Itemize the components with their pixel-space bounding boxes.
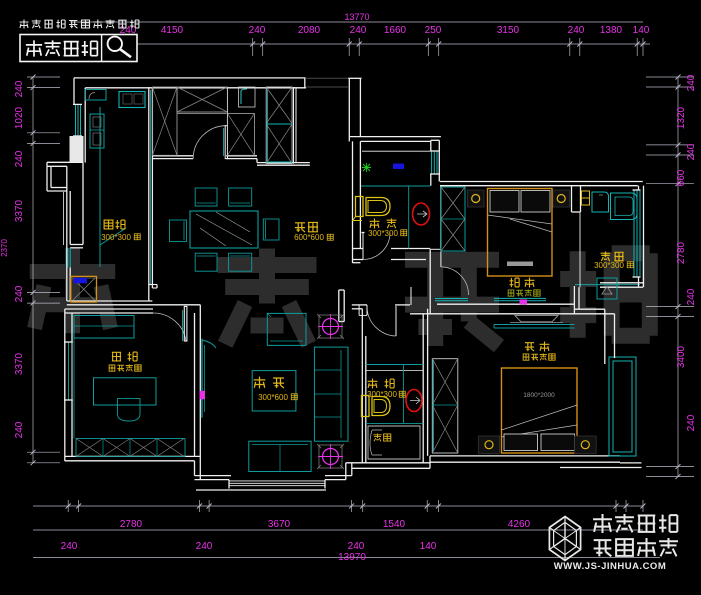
svg-text:660: 660 bbox=[676, 169, 687, 186]
svg-text:140: 140 bbox=[420, 541, 437, 552]
svg-text:240: 240 bbox=[350, 25, 367, 36]
svg-text:2370: 2370 bbox=[0, 239, 9, 257]
svg-text:3370: 3370 bbox=[14, 352, 25, 375]
svg-text:240: 240 bbox=[14, 285, 25, 302]
svg-text:1540: 1540 bbox=[383, 519, 406, 530]
svg-text:300*300: 300*300 bbox=[368, 229, 398, 238]
svg-text:600*600: 600*600 bbox=[294, 233, 324, 242]
svg-text:1020: 1020 bbox=[14, 106, 25, 129]
svg-text:140: 140 bbox=[633, 25, 650, 36]
svg-text:3150: 3150 bbox=[497, 25, 520, 36]
svg-text:1380: 1380 bbox=[600, 25, 623, 36]
svg-text:1320: 1320 bbox=[676, 106, 687, 129]
svg-text:4260: 4260 bbox=[508, 519, 531, 530]
svg-text:240: 240 bbox=[686, 74, 697, 91]
svg-text:240: 240 bbox=[686, 288, 697, 305]
svg-text:300*300: 300*300 bbox=[594, 261, 624, 270]
svg-text:240: 240 bbox=[568, 25, 585, 36]
svg-text:4150: 4150 bbox=[161, 25, 184, 36]
svg-text:3400: 3400 bbox=[676, 345, 687, 368]
svg-text:240: 240 bbox=[14, 80, 25, 97]
svg-text:300*600: 300*600 bbox=[258, 393, 288, 402]
svg-text:13970: 13970 bbox=[338, 552, 366, 563]
svg-text:300*300: 300*300 bbox=[101, 233, 131, 242]
svg-text:250: 250 bbox=[425, 25, 442, 36]
svg-text:240: 240 bbox=[14, 421, 25, 438]
svg-text:240: 240 bbox=[14, 150, 25, 167]
svg-text:3370: 3370 bbox=[14, 199, 25, 222]
svg-text:13770: 13770 bbox=[344, 12, 369, 22]
svg-text:240: 240 bbox=[686, 143, 697, 160]
svg-text:1660: 1660 bbox=[384, 25, 407, 36]
svg-text:240: 240 bbox=[686, 414, 697, 431]
svg-text:240: 240 bbox=[61, 541, 78, 552]
svg-text:300*300: 300*300 bbox=[367, 390, 397, 399]
svg-text:3670: 3670 bbox=[268, 519, 291, 530]
svg-text:240: 240 bbox=[249, 25, 266, 36]
svg-text:2780: 2780 bbox=[120, 519, 143, 530]
svg-text:240: 240 bbox=[196, 541, 213, 552]
svg-text:2780: 2780 bbox=[676, 241, 687, 264]
svg-text:2080: 2080 bbox=[298, 25, 321, 36]
svg-text:WWW.JS-JINHUA.COM: WWW.JS-JINHUA.COM bbox=[554, 561, 666, 572]
svg-text:1800*2000: 1800*2000 bbox=[523, 392, 555, 399]
svg-text:240: 240 bbox=[348, 541, 365, 552]
